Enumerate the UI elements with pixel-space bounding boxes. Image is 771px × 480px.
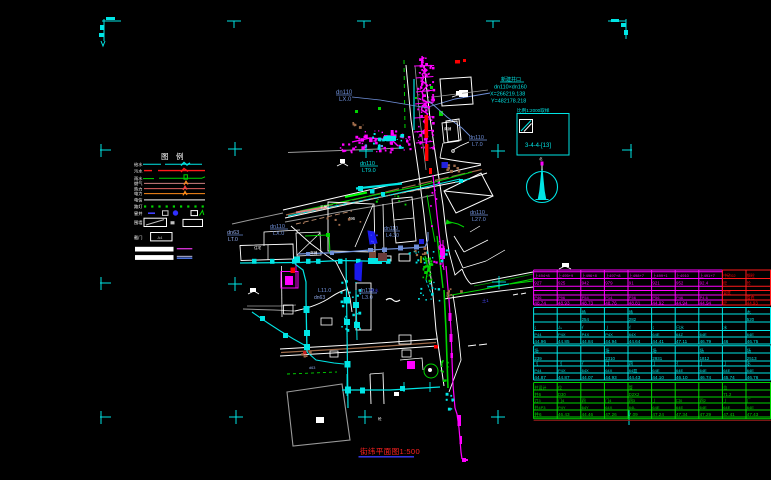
svg-text:管底: 管底 [723,290,731,295]
svg-text:Y=482178.218: Y=482178.218 [491,99,526,105]
svg-text:46: 46 [723,339,729,344]
svg-text:LT9.0: LT9.0 [362,168,376,174]
svg-text:上4910: 上4910 [676,272,690,278]
svg-text:64E: 64E [700,368,707,373]
svg-text:44.96: 44.96 [534,339,546,344]
svg-text:64E: 64E [652,332,659,337]
svg-text:64E: 64E [700,332,707,337]
svg-text:日水: 日水 [676,324,684,330]
svg-text:亅: 亅 [652,397,656,403]
svg-text:水: 水 [723,324,727,330]
svg-text:LX.0: LX.0 [273,231,284,237]
svg-text:场: 场 [700,347,704,354]
svg-text:亅: 亅 [723,360,727,366]
svg-text:48.73: 48.73 [582,300,594,305]
svg-text:47.29: 47.29 [700,412,712,417]
svg-text:路灯: 路灯 [134,203,143,210]
svg-text:土1: 土1 [482,297,489,303]
svg-text:L7.0: L7.0 [472,142,483,148]
svg-text:282: 282 [629,317,637,322]
svg-text:48.74: 48.74 [534,300,546,305]
svg-text:921: 921 [652,280,660,285]
svg-text:46.43: 46.43 [558,412,570,417]
svg-text:厂: 厂 [747,398,751,403]
svg-text:L4.30: L4.30 [386,233,399,239]
svg-text:P4X: P4X [605,332,613,337]
svg-text:刂: 刂 [558,360,562,366]
svg-text:管: 管 [629,384,633,390]
svg-text:64Z: 64Z [676,332,683,337]
svg-text:d63: d63 [309,366,315,370]
svg-text:71.2: 71.2 [723,392,732,397]
svg-text:亅: 亅 [723,397,727,403]
svg-text:47.26: 47.26 [605,412,617,417]
svg-text:P4X: P4X [582,332,590,337]
svg-text:44.41: 44.41 [652,339,664,344]
svg-text:44.43: 44.43 [629,375,641,380]
svg-text:64X: 64X [582,368,589,373]
svg-text:64L: 64L [629,405,636,410]
svg-text:井4P3: 井4P3 [534,404,546,410]
svg-text:44.64: 44.64 [629,339,641,344]
svg-text:D30: D30 [558,392,566,397]
svg-text:LT.0: LT.0 [228,237,238,243]
svg-text:D2X2: D2X2 [629,392,640,397]
svg-text:四: 四 [629,361,633,366]
svg-text:64E: 64E [652,405,659,410]
svg-text:64E: 64E [652,368,659,373]
svg-text:46.75: 46.75 [747,339,759,344]
svg-text:47.41: 47.41 [723,412,735,417]
svg-text:住宅: 住宅 [254,245,262,250]
svg-text:位: 位 [558,384,562,390]
svg-text:厶: 厶 [558,325,562,330]
svg-text:952: 952 [676,280,684,285]
svg-text:氵: 氵 [652,325,656,330]
svg-text:井6: 井6 [534,411,542,418]
svg-text:围墙: 围墙 [134,219,142,226]
svg-text:64E: 64E [747,368,754,373]
svg-text:44.84: 44.84 [582,339,594,344]
svg-text:1812: 1812 [700,356,710,361]
svg-text:92.4: 92.4 [700,280,709,285]
svg-text:48.93: 48.93 [558,300,570,305]
svg-text:氵: 氵 [534,325,538,330]
svg-text:44.93: 44.93 [747,300,759,305]
svg-text:井6: 井6 [534,391,541,398]
svg-text:P4Y: P4Y [558,405,566,410]
svg-text:L3.0: L3.0 [362,295,373,301]
svg-text:钢砼: 钢砼 [747,272,755,278]
svg-text:平房: 平房 [320,204,328,209]
svg-text:927: 927 [534,280,542,285]
svg-text:给水: 给水 [134,161,143,168]
svg-text:520: 520 [747,317,755,322]
svg-text:砼: 砼 [723,299,727,305]
svg-text:截门: 截门 [134,234,142,241]
svg-text:47.34: 47.34 [676,412,688,417]
svg-text:P4X: P4X [558,368,566,373]
svg-text:942: 942 [582,280,590,285]
svg-text:dn63: dn63 [314,295,325,301]
svg-text:四: 四 [582,398,586,403]
svg-text:砼: 砼 [378,416,382,421]
svg-text:亅: 亅 [605,324,609,330]
svg-text:四3: 四3 [629,398,636,403]
svg-text:L11.0: L11.0 [318,288,331,294]
svg-text:刂: 刂 [534,360,538,366]
svg-text:254: 254 [582,317,590,322]
svg-text:上499+1: 上499+1 [652,272,668,278]
svg-text:P44: P44 [534,368,542,373]
svg-text:2310: 2310 [605,356,615,361]
svg-text:44.93: 44.93 [605,375,617,380]
svg-text:64X: 64X [629,332,636,337]
svg-text:46.79: 46.79 [700,339,712,344]
svg-text:X=266219.138: X=266219.138 [490,92,525,98]
svg-text:上497+8: 上497+8 [605,272,621,278]
svg-text:位: 位 [723,384,727,390]
svg-text:砼: 砼 [723,279,727,285]
svg-text:电信: 电信 [134,197,142,204]
svg-text:电力: 电力 [134,190,142,197]
svg-text:上498+7: 上498+7 [629,272,645,278]
svg-text:2931: 2931 [652,356,662,361]
svg-text:场: 场 [582,308,586,315]
svg-text:上495+9: 上495+9 [558,272,574,278]
svg-text:46.10: 46.10 [676,375,688,380]
svg-text:44.94: 44.94 [605,339,617,344]
svg-text:场: 场 [652,347,656,354]
svg-text:46.74: 46.74 [700,375,712,380]
svg-text:L27.0: L27.0 [472,217,486,223]
svg-text:刀3: 刀3 [534,398,541,403]
svg-text:64E: 64E [723,368,730,373]
svg-text:44.87: 44.87 [534,375,546,380]
svg-text:64E: 64E [700,405,707,410]
svg-text:979: 979 [605,280,613,285]
svg-text:场: 场 [534,347,538,354]
svg-text:街纬平面图1:500: 街纬平面图1:500 [360,446,420,456]
svg-text:门4: 门4 [558,397,565,403]
svg-text:45.74: 45.74 [723,375,735,380]
svg-text:水: 水 [747,360,751,366]
svg-text:47.11: 47.11 [676,339,688,344]
svg-text:64E: 64E [747,405,754,410]
svg-text:44.87: 44.87 [558,375,570,380]
svg-text:中砂02: 中砂02 [723,272,736,278]
svg-text:上496+8: 上496+8 [582,272,598,278]
svg-text:44.10: 44.10 [652,375,664,380]
svg-text:门: 门 [605,360,609,366]
svg-text:图 例: 图 例 [161,151,184,161]
svg-text:井设计: 井设计 [534,384,546,390]
svg-text:47.43: 47.43 [747,412,759,417]
svg-text:场: 场 [747,347,751,354]
svg-text:44.92: 44.92 [652,300,664,305]
svg-text:亻: 亻 [629,325,633,330]
svg-text:47.24: 47.24 [652,412,664,417]
svg-text:64E: 64E [723,405,730,410]
svg-text:亅: 亅 [652,360,656,366]
svg-text:商铺: 商铺 [310,250,318,255]
svg-text:dn110×dn160: dn110×dn160 [494,85,527,91]
svg-text:窨井: 窨井 [134,210,142,217]
svg-text:44.07: 44.07 [582,375,594,380]
svg-text:污水: 污水 [134,167,143,174]
svg-text:64Y: 64Y [582,405,589,410]
svg-text:2513: 2513 [747,356,757,361]
svg-text:LX.0: LX.0 [339,97,352,103]
svg-text:口0: 口0 [676,398,683,403]
svg-text:3-4-4-[13]: 3-4-4-[13] [525,143,551,149]
svg-text:亻: 亻 [676,361,680,366]
svg-text:64E: 64E [676,405,683,410]
svg-text:砼: 砼 [747,279,751,285]
svg-text:925: 925 [558,280,566,285]
svg-text:44.46: 44.46 [582,412,594,417]
svg-text:64E: 64E [676,368,683,373]
svg-text:239: 239 [534,356,542,361]
svg-text:48.81: 48.81 [629,300,641,305]
svg-text:P44: P44 [534,332,542,337]
svg-text:亻: 亻 [582,361,586,366]
svg-text:上494+8: 上494+8 [534,272,550,278]
svg-text:44.94: 44.94 [676,300,688,305]
svg-text:A4: A4 [158,235,164,240]
svg-text:44.85: 44.85 [558,339,570,344]
svg-text:P4X: P4X [558,332,566,337]
svg-text:场: 场 [605,347,609,354]
svg-text:门4: 门4 [605,397,612,403]
svg-text:64E: 64E [747,332,754,337]
svg-text:亅: 亅 [700,360,704,366]
svg-text:44.94: 44.94 [700,300,712,305]
svg-text:四2: 四2 [700,398,707,403]
svg-text:48.76: 48.76 [605,300,617,305]
svg-text:64X: 64X [605,405,612,410]
svg-text:64皿: 64皿 [629,368,637,373]
svg-text:上491+7: 上491+7 [700,272,716,278]
svg-text:7.09: 7.09 [629,412,638,417]
svg-text:比例1:2000取样: 比例1:2000取样 [517,107,550,114]
svg-text:场: 场 [629,308,633,315]
svg-text:商铺: 商铺 [444,126,452,131]
svg-text:91: 91 [629,280,634,285]
svg-text:46.76: 46.76 [747,375,759,380]
svg-text:亻: 亻 [582,325,586,330]
svg-text:64X: 64X [605,368,612,373]
